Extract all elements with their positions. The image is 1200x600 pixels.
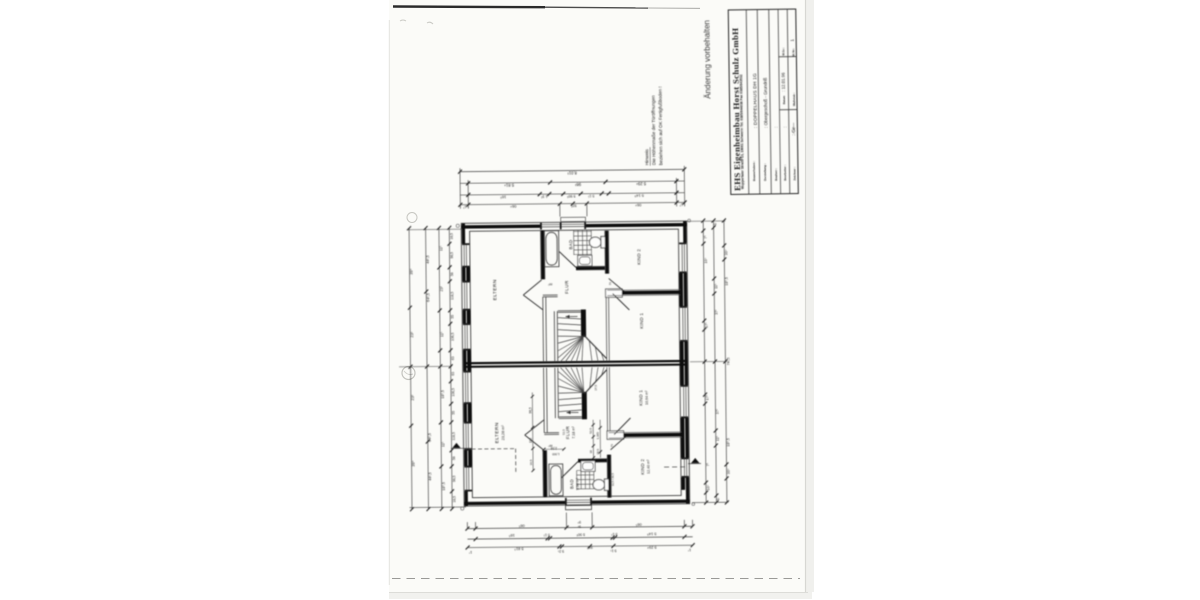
- svg-text:11⁵: 11⁵: [440, 331, 444, 337]
- svg-text:30: 30: [589, 450, 593, 454]
- svg-text:58: 58: [450, 272, 454, 276]
- svg-text:38,5: 38,5: [596, 448, 600, 454]
- svg-text:106,5: 106,5: [451, 388, 455, 397]
- svg-text:Die Höhenmaße der Türöffnungen: Die Höhenmaße der Türöffnungen: [651, 95, 657, 165]
- svg-text:M.Gr.:: M.Gr.:: [781, 47, 785, 55]
- svg-text:BAD: BAD: [569, 479, 574, 489]
- svg-text:KIND 2: KIND 2: [640, 459, 645, 475]
- svg-text:11⁵: 11⁵: [716, 435, 720, 441]
- svg-text:52,5: 52,5: [589, 428, 593, 434]
- svg-text:ELTERN: ELTERN: [494, 422, 500, 443]
- svg-text:18⁶,5: 18⁶,5: [725, 277, 729, 286]
- svg-text:5 81⁴: 5 81⁴: [504, 183, 514, 188]
- svg-text:8,01⁵: 8,01⁵: [567, 171, 577, 176]
- svg-text:23²: 23²: [440, 285, 444, 291]
- svg-text:5 90⁶: 5 90⁶: [576, 532, 585, 536]
- svg-text:52,5: 52,5: [562, 429, 566, 435]
- svg-text::: :: [782, 126, 787, 127]
- svg-text:74²,5: 74²,5: [726, 357, 730, 365]
- svg-text:11⁵: 11⁵: [714, 283, 718, 289]
- svg-text:7⁵: 7⁵: [704, 235, 708, 239]
- svg-text:23²: 23²: [410, 394, 415, 400]
- svg-text:5 2¹: 5 2¹: [557, 549, 564, 553]
- svg-text:11,5 / 36,5: 11,5 / 36,5: [611, 473, 615, 486]
- svg-text:06⁵: 06⁵: [635, 522, 641, 527]
- svg-text:118,5: 118,5: [450, 292, 454, 300]
- svg-text:06⁴: 06⁴: [510, 204, 516, 209]
- svg-text:Hinweis: Hinweis: [644, 148, 649, 165]
- svg-text:5 1¹: 5 1¹: [587, 194, 594, 198]
- svg-text:10⁴: 10⁴: [704, 257, 708, 263]
- svg-text:5 1¹: 5 1¹: [543, 533, 550, 537]
- svg-text:beziehen sich auf OK Fertigfuß: beziehen sich auf OK Fertigfußboden !: [658, 86, 664, 165]
- svg-text:10,64 m²: 10,64 m²: [645, 390, 649, 405]
- svg-text:18,5: 18,5: [452, 496, 456, 503]
- svg-text:64²,5: 64²,5: [427, 432, 432, 442]
- svg-text:39⁹: 39⁹: [411, 460, 416, 466]
- svg-text:64²,5: 64²,5: [425, 292, 430, 302]
- svg-text:1,005: 1,005: [552, 452, 560, 456]
- svg-text:06⁵: 06⁵: [518, 523, 524, 528]
- svg-text:92⁵: 92⁵: [571, 204, 577, 208]
- svg-text:98²: 98²: [575, 182, 582, 187]
- svg-text:98,5: 98,5: [452, 475, 456, 482]
- svg-text:: Obergeschoß - Grundriß: : Obergeschoß - Grundriß: [763, 77, 769, 128]
- svg-text:115: 115: [529, 438, 533, 443]
- svg-text:5 14⁸: 5 14⁸: [647, 532, 657, 537]
- svg-text:: ⁄G̵e—: : ⁄G̵e—: [791, 122, 796, 136]
- svg-text:98²: 98²: [586, 545, 592, 550]
- svg-text:FLUR: FLUR: [565, 426, 570, 440]
- svg-text:: 12.01.96: : 12.01.96: [780, 72, 785, 92]
- svg-text:06⁴: 06⁴: [635, 203, 641, 208]
- svg-text:76: 76: [608, 282, 612, 286]
- svg-text:BAD: BAD: [568, 240, 573, 250]
- svg-text:Zeichner :: Zeichner :: [793, 167, 797, 181]
- svg-text:98,5: 98,5: [528, 407, 532, 413]
- svg-text:16⁶: 16⁶: [508, 533, 514, 538]
- svg-text:37,5: 37,5: [594, 385, 598, 391]
- svg-text:18⁶,5: 18⁶,5: [442, 482, 446, 491]
- svg-text:30⁴: 30⁴: [727, 468, 731, 474]
- svg-text:KIND 1: KIND 1: [638, 390, 643, 406]
- svg-text:KIND 1: KIND 1: [639, 313, 644, 329]
- svg-text:FLUR: FLUR: [564, 280, 569, 294]
- svg-text:5 29⁴: 5 29⁴: [636, 181, 646, 186]
- svg-text:5 1¹: 5 1¹: [610, 549, 617, 553]
- svg-text:106,5: 106,5: [451, 332, 455, 341]
- svg-text:23²: 23²: [409, 331, 414, 337]
- svg-text:37⁷: 37⁷: [715, 309, 719, 315]
- svg-text:5 1⁰: 5 1⁰: [610, 532, 617, 536]
- svg-text:Darstellung :: Darstellung :: [763, 163, 767, 181]
- svg-text:Maßstab :: Maßstab :: [792, 93, 796, 107]
- svg-text:: DOPPELHAUS DH 1G: : DOPPELHAUS DH 1G: [752, 73, 759, 128]
- svg-text:118,5: 118,5: [452, 432, 456, 440]
- svg-text:Bauherr :: Bauherr :: [774, 168, 778, 181]
- svg-text:1,385: 1,385: [596, 432, 600, 440]
- svg-text:5 14⁸: 5 14⁸: [634, 193, 644, 198]
- svg-text:58: 58: [452, 456, 456, 460]
- svg-text:10⁴: 10⁴: [706, 484, 710, 490]
- svg-text:55: 55: [451, 411, 455, 415]
- svg-text:63: 63: [451, 372, 455, 376]
- svg-text:37⁷: 37⁷: [716, 408, 720, 414]
- svg-text:11⁵: 11⁵: [439, 245, 443, 251]
- svg-text:7,18 m²: 7,18 m²: [572, 426, 576, 439]
- svg-text:18⁶,5: 18⁶,5: [726, 438, 730, 447]
- svg-text:Bl.Nr.:: Bl.Nr.:: [791, 48, 795, 57]
- svg-text:23,28 m²: 23,28 m²: [501, 425, 505, 441]
- svg-text:17⁵: 17⁵: [704, 322, 708, 328]
- svg-text:18,5: 18,5: [450, 233, 454, 240]
- svg-text:Bearbeiter :: Bearbeiter :: [783, 165, 787, 181]
- svg-text:Datum: Datum: [782, 95, 786, 104]
- svg-text:44²,5: 44²,5: [428, 472, 432, 481]
- svg-text:11⁵: 11⁵: [441, 441, 445, 447]
- svg-text:44²,5: 44²,5: [426, 255, 430, 264]
- svg-text:ELTERN: ELTERN: [492, 279, 498, 300]
- svg-text:30⁴: 30⁴: [724, 249, 728, 255]
- svg-text:5,90 m²: 5,90 m²: [576, 477, 580, 490]
- svg-text:16⁶: 16⁶: [500, 195, 506, 200]
- svg-text:1 3⁵: 1 3⁵: [540, 194, 547, 198]
- svg-text:76: 76: [610, 444, 614, 448]
- svg-text:36,5: 36,5: [529, 459, 533, 465]
- svg-text:7⁵: 7⁵: [706, 462, 710, 466]
- svg-text:5 29⁴: 5 29⁴: [647, 545, 657, 550]
- svg-text:12,40 m²: 12,40 m²: [647, 459, 651, 474]
- svg-text:5 90⁶: 5 90⁶: [566, 194, 575, 198]
- svg-text:KIND 2: KIND 2: [636, 249, 641, 265]
- svg-text:Bauvorhaben :: Bauvorhaben :: [752, 161, 756, 181]
- svg-text::: :: [773, 127, 778, 128]
- svg-text:18⁶,5: 18⁶,5: [441, 390, 445, 399]
- svg-text:39⁹: 39⁹: [409, 268, 414, 274]
- svg-text:Änderung vorbehalten: Änderung vorbehalten: [702, 20, 712, 99]
- svg-text:63: 63: [451, 356, 455, 360]
- svg-text:98,5: 98,5: [450, 252, 454, 259]
- svg-text:55: 55: [450, 315, 454, 319]
- svg-text:17⁵: 17⁵: [705, 394, 709, 400]
- svg-text:5 81⁹: 5 81⁹: [514, 547, 524, 552]
